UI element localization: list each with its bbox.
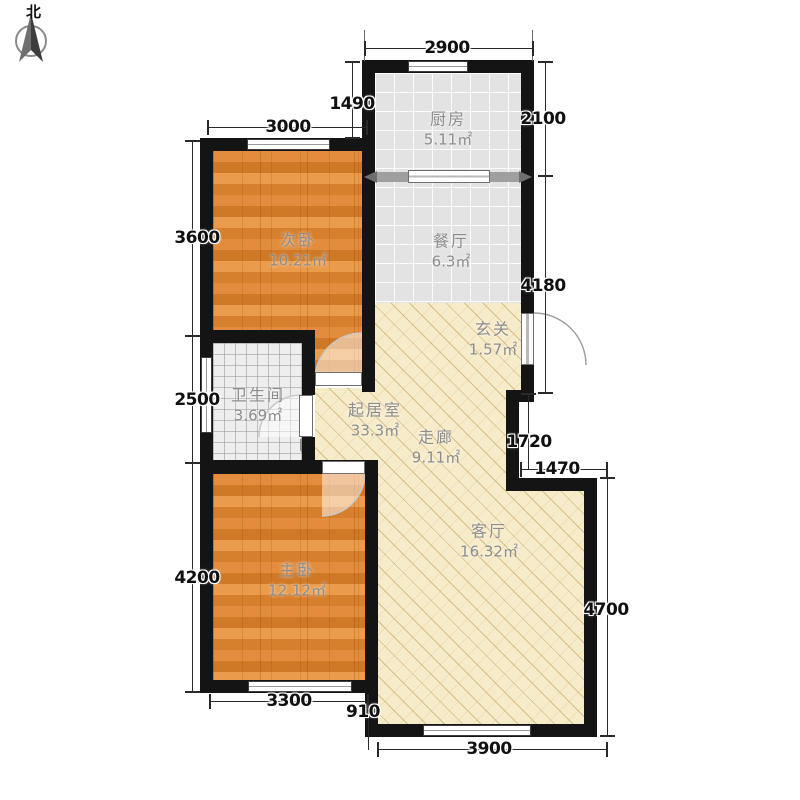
room-label-corridor: 走廊 9.11㎡	[412, 427, 460, 468]
dim-tick	[185, 335, 200, 337]
room-area: 16.32㎡	[460, 542, 518, 562]
room-area: 3.69㎡	[231, 406, 285, 426]
dim-tick	[345, 61, 360, 63]
room-name: 主卧	[268, 560, 326, 581]
wall	[200, 330, 315, 343]
dim-label-master-bedroom-width: 3300	[266, 691, 311, 711]
dim-tick	[606, 742, 608, 757]
room-label-kitchen: 厨房 5.11㎡	[424, 109, 472, 150]
room-area: 1.57㎡	[469, 340, 517, 360]
sliding-door-arrow-right	[519, 171, 532, 183]
dim-label-living-room-depth: 4700	[583, 600, 628, 620]
dim-tick	[377, 742, 379, 757]
room-label-second-bedroom: 次卧 10.21㎡	[269, 230, 327, 271]
dim-label-kitchen-left-offset: 1490	[329, 94, 374, 114]
dim-label-second-bedroom-depth: 3600	[174, 228, 219, 248]
room-area: 9.11㎡	[412, 448, 460, 468]
dim-tick	[606, 462, 608, 477]
dim-label-corridor-step-depth: 1720	[506, 432, 551, 452]
room-label-dining: 餐厅 6.3㎡	[432, 231, 471, 272]
room-label-bathroom: 卫生间 3.69㎡	[231, 385, 285, 426]
second-bedroom-window	[247, 139, 330, 150]
dim-tick	[520, 462, 522, 477]
dim-tick	[538, 61, 553, 63]
living-room-window	[423, 725, 531, 736]
compass-circle	[16, 26, 46, 56]
room-area: 6.3㎡	[432, 252, 471, 272]
dim-label-kitchen-width: 2900	[424, 38, 469, 58]
room-name: 走廊	[412, 427, 460, 448]
dim-tick	[185, 462, 200, 464]
room-name: 卫生间	[231, 385, 285, 406]
dim-label-bathroom-depth: 2500	[174, 390, 219, 410]
dim-tick	[185, 691, 200, 693]
dim-line	[192, 141, 193, 693]
room-area: 5.11㎡	[424, 130, 472, 150]
dim-tick	[185, 140, 200, 142]
dim-label-bottom-offset: 910	[346, 702, 380, 722]
room-name: 次卧	[269, 230, 327, 251]
floor-plan: 北	[0, 0, 800, 800]
bathroom-door-leaf	[299, 395, 313, 437]
dim-tick	[345, 137, 360, 139]
dim-label-kitchen-depth: 2100	[520, 109, 565, 129]
room-label-living: 起居室 33.3㎡	[348, 400, 402, 441]
room-name: 厨房	[424, 109, 472, 130]
dim-tick	[538, 175, 553, 177]
dim-tick	[600, 477, 615, 479]
room-area: 10.21㎡	[269, 251, 327, 271]
entry-door-leaf	[521, 313, 534, 365]
room-name: 起居室	[348, 400, 402, 421]
kitchen-window	[408, 61, 468, 72]
dim-tick	[521, 393, 536, 395]
dim-tick	[207, 120, 209, 135]
room-name: 餐厅	[432, 231, 471, 252]
dim-label-living-step-width: 1470	[534, 459, 579, 479]
dim-tick	[209, 694, 211, 709]
room-label-living-room: 客厅 16.32㎡	[460, 521, 518, 562]
dim-label-living-room-width: 3900	[466, 739, 511, 759]
dim-tick	[600, 735, 615, 737]
sliding-door-arrow-left	[364, 171, 377, 183]
room-label-master-bedroom: 主卧 12.12㎡	[268, 560, 326, 601]
dim-label-second-bedroom-width: 3000	[265, 117, 310, 137]
dim-tick	[364, 41, 366, 56]
second-bedroom-door-leaf	[315, 372, 362, 386]
dim-tick	[366, 120, 368, 135]
master-bedroom-door-leaf	[322, 461, 365, 474]
compass-north-label: 北	[26, 1, 41, 22]
entry-door-arc	[534, 313, 586, 365]
room-name: 客厅	[460, 521, 518, 542]
room-area: 33.3㎡	[348, 421, 402, 441]
room-name: 玄关	[469, 319, 517, 340]
dim-label-master-bedroom-depth: 4200	[174, 568, 219, 588]
dim-label-dining-entry-depth: 4180	[520, 276, 565, 296]
kitchen-sliding-door-leaf	[408, 170, 490, 183]
dim-tick	[538, 392, 553, 394]
dim-tick	[532, 41, 534, 56]
wall	[302, 330, 315, 395]
room-label-entry-hall: 玄关 1.57㎡	[469, 319, 517, 360]
room-area: 12.12㎡	[268, 581, 326, 601]
